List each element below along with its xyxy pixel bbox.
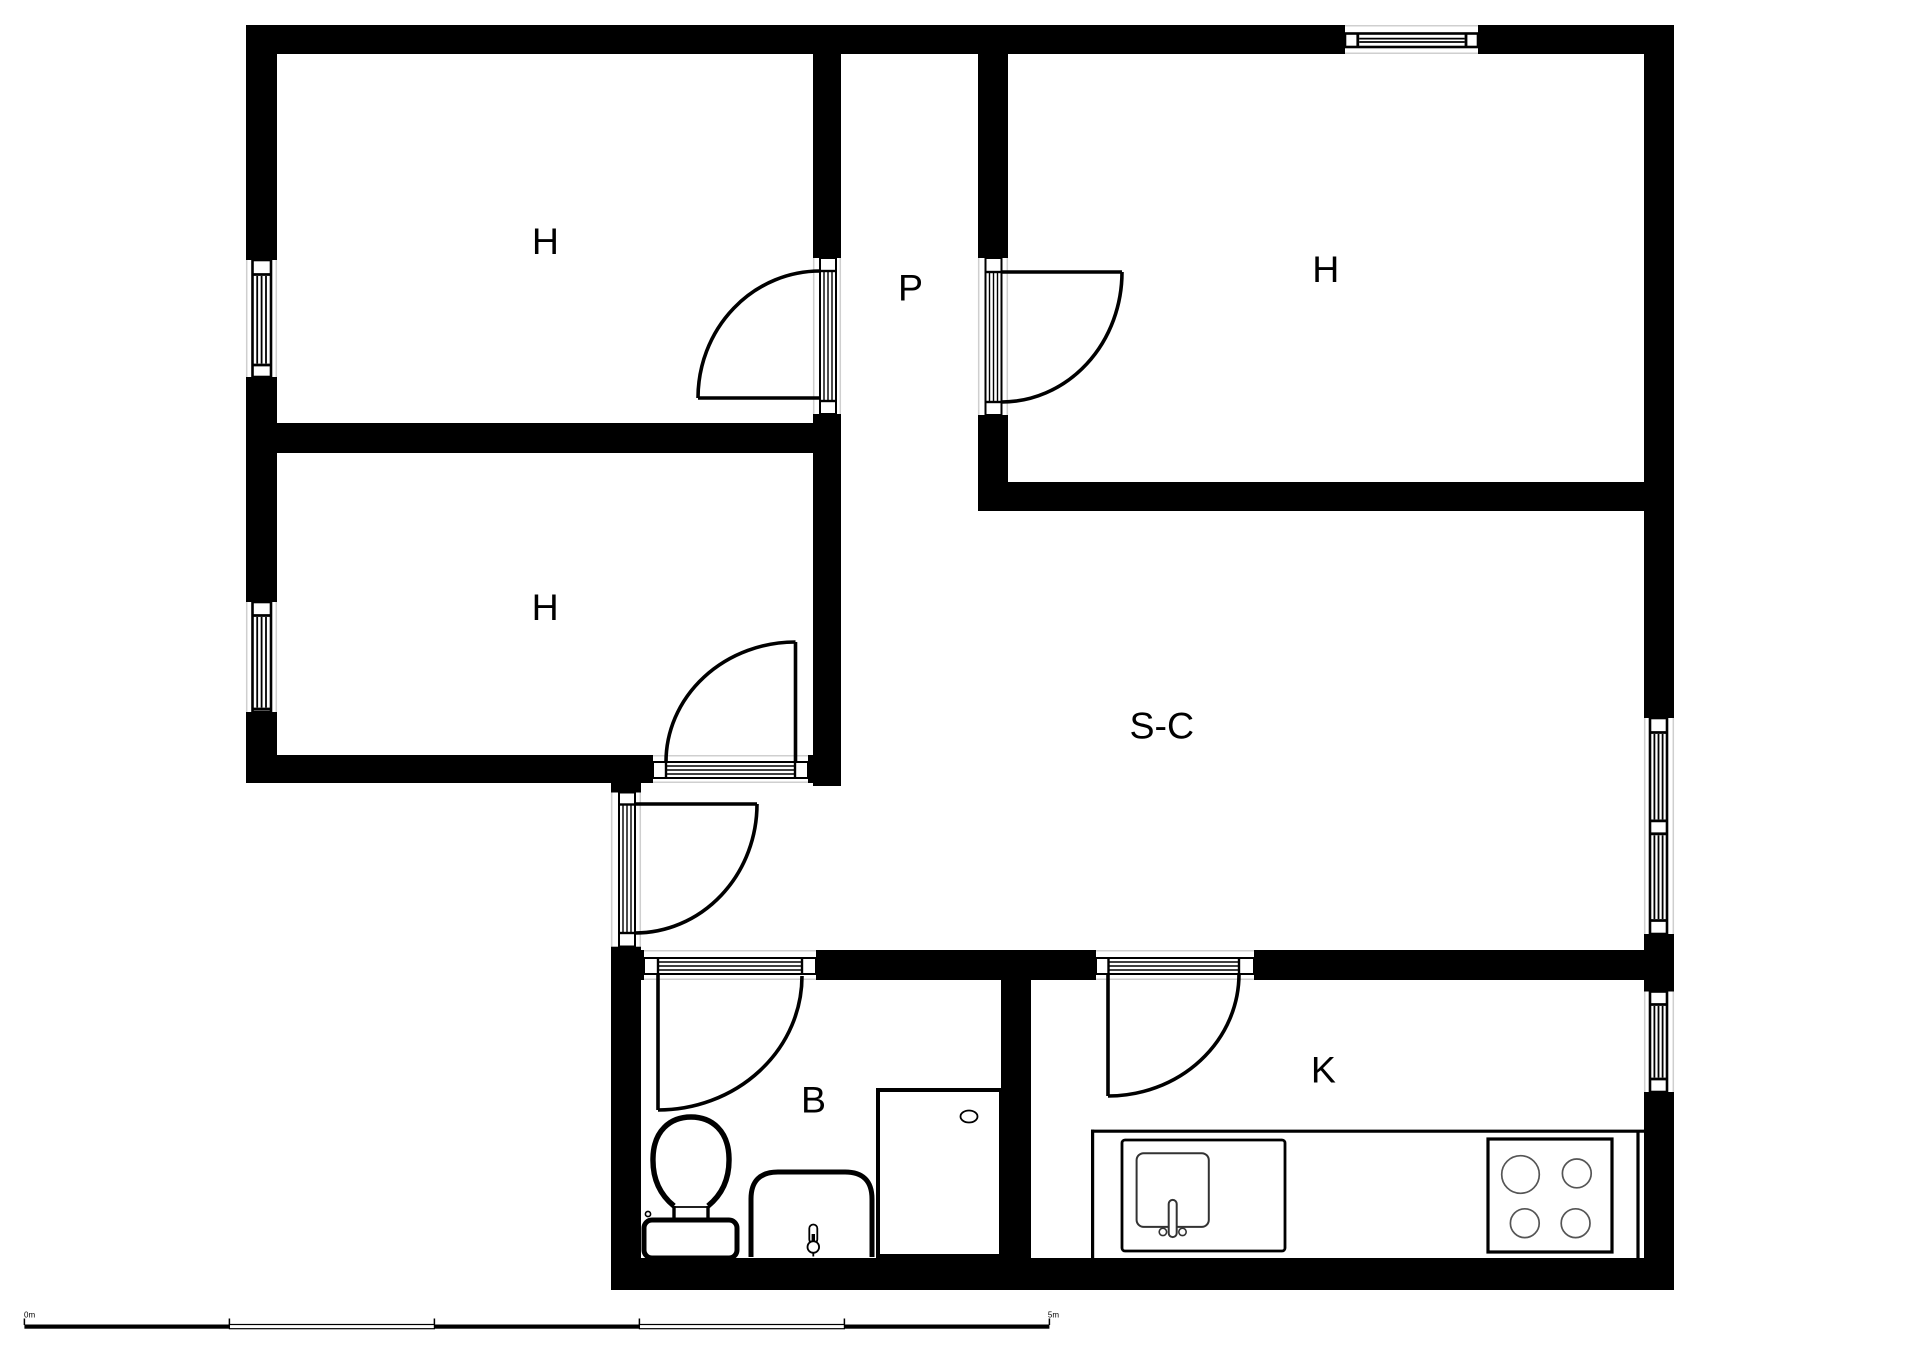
svg-text:5m: 5m — [1048, 1311, 1059, 1320]
svg-text:H: H — [532, 220, 559, 262]
svg-text:P: P — [898, 267, 923, 309]
svg-text:B: B — [801, 1079, 826, 1121]
svg-text:H: H — [1312, 248, 1339, 290]
svg-text:S-C: S-C — [1130, 705, 1195, 747]
svg-text:K: K — [1311, 1049, 1336, 1091]
svg-text:0m: 0m — [24, 1311, 35, 1320]
svg-text:H: H — [532, 586, 559, 628]
